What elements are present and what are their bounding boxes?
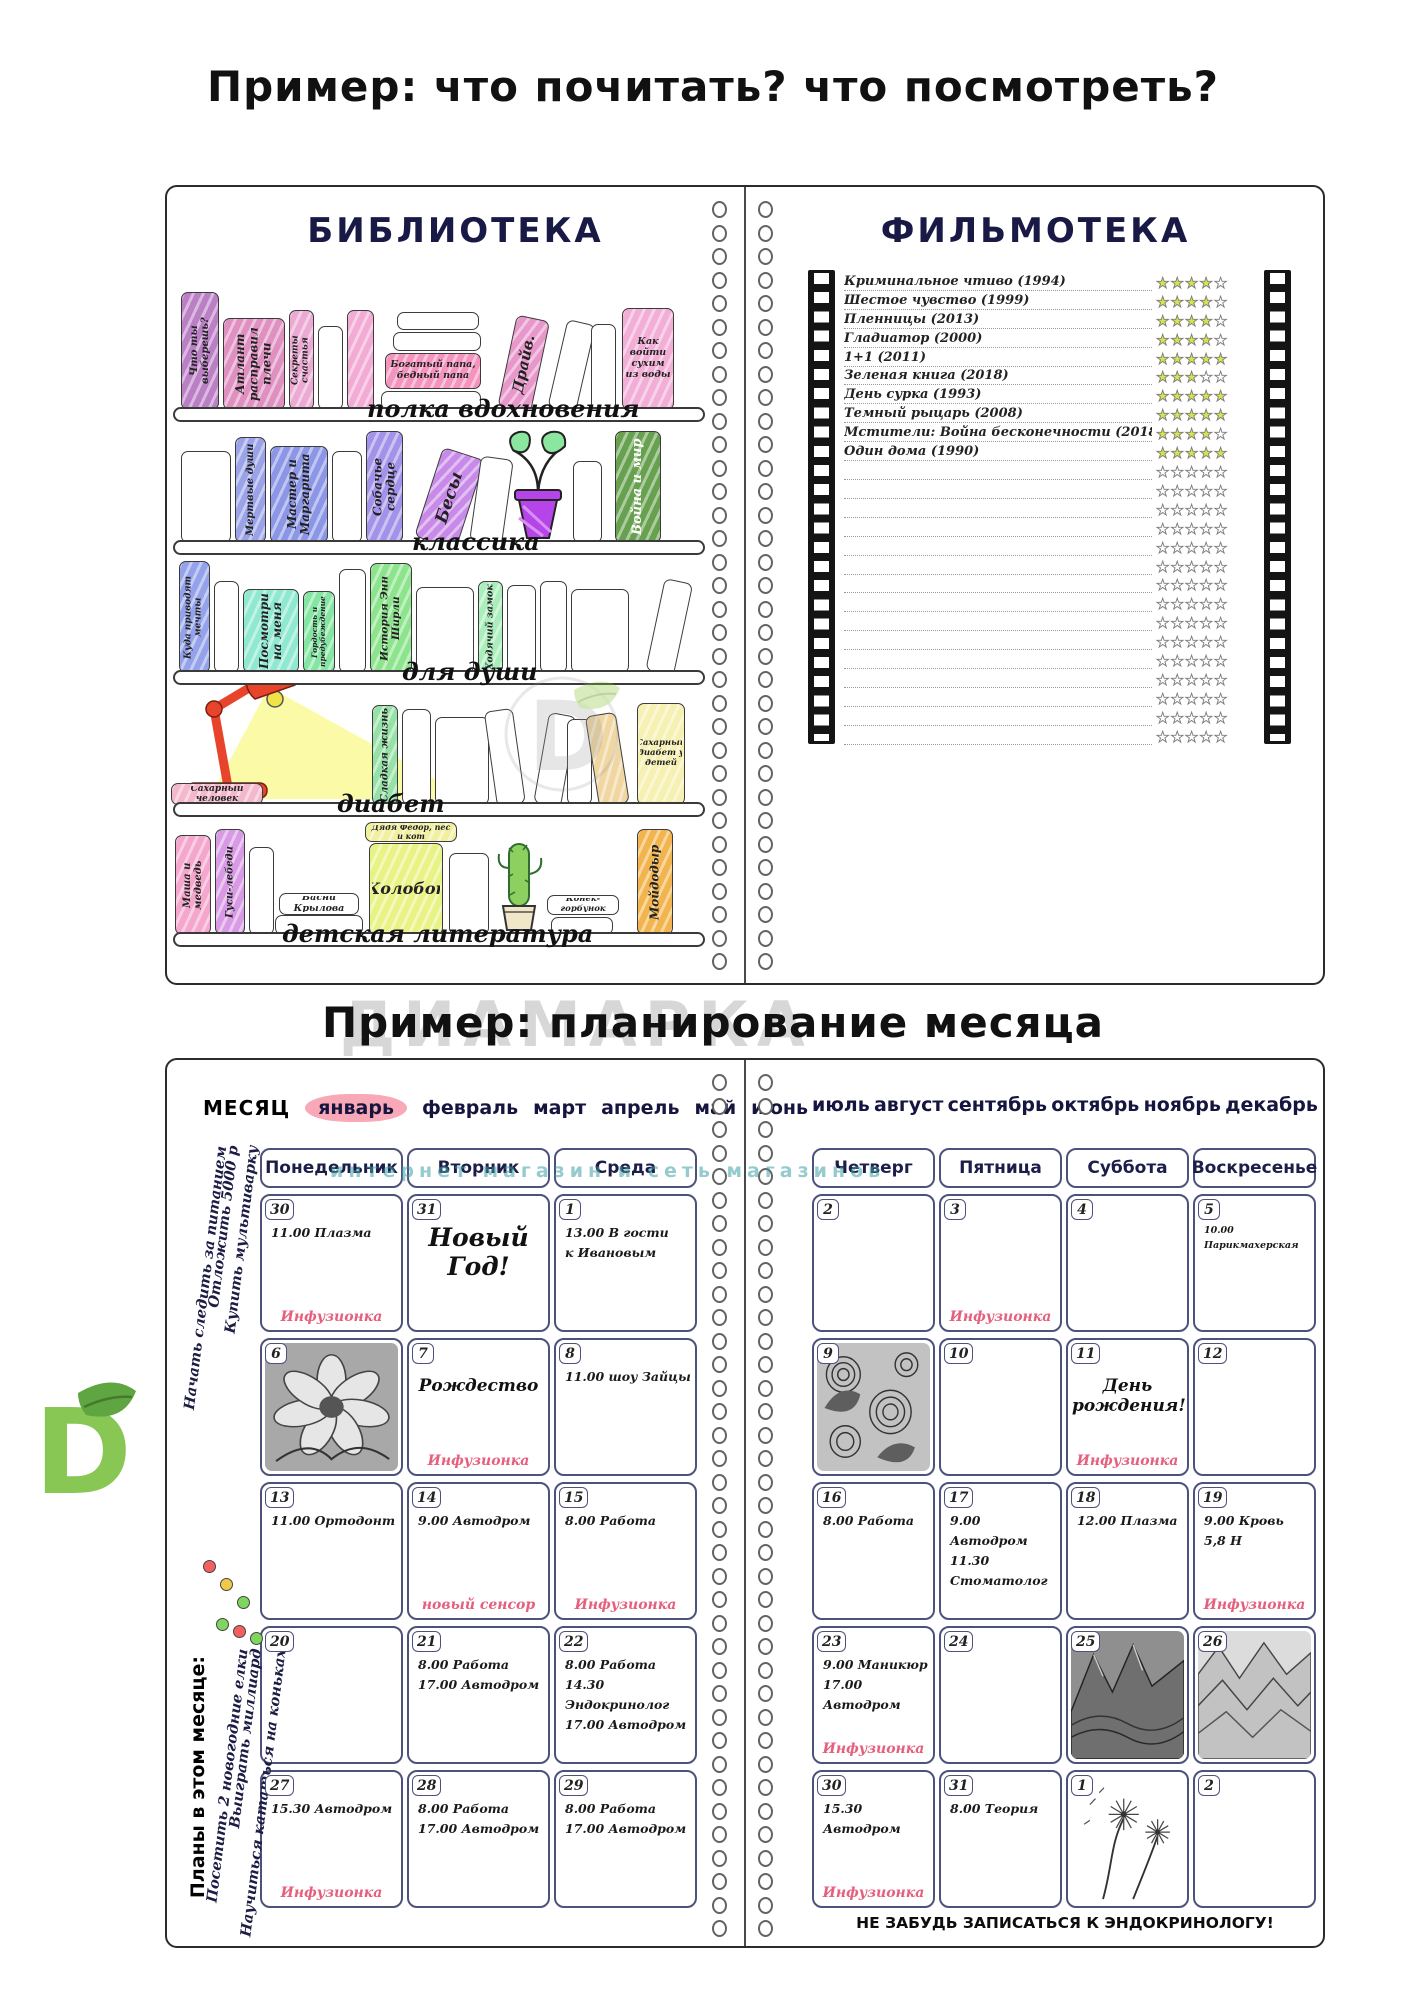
calendar-cell-18: 1812.00 Плазма bbox=[1066, 1482, 1189, 1620]
star-empty-icon: ★ bbox=[1199, 558, 1213, 576]
spiral-hole bbox=[758, 1380, 773, 1397]
book-spine bbox=[645, 578, 693, 676]
month-январь: январь bbox=[305, 1094, 407, 1122]
calendar-cell-5: 510.00 Парикмахерская bbox=[1193, 1194, 1316, 1332]
star-filled-icon: ★ bbox=[1156, 350, 1170, 368]
star-empty-icon: ★ bbox=[1156, 633, 1170, 651]
star-empty-icon: ★ bbox=[1185, 671, 1199, 689]
star-empty-icon: ★ bbox=[1170, 671, 1184, 689]
film-rating: ★★★★★ bbox=[1156, 632, 1254, 651]
star-empty-icon: ★ bbox=[1185, 576, 1199, 594]
star-filled-icon: ★ bbox=[1156, 444, 1170, 462]
star-filled-icon: ★ bbox=[1156, 425, 1170, 443]
calendar-cell-12: 12 bbox=[1193, 1338, 1316, 1476]
cell-entry: 15.30 Автодром bbox=[823, 1799, 929, 1839]
film-name bbox=[844, 595, 1152, 612]
film-row: Криминальное чтиво (1994)★★★★★ bbox=[844, 273, 1254, 292]
star-filled-icon: ★ bbox=[1170, 331, 1184, 349]
book-spine bbox=[181, 451, 231, 543]
film-rating: ★★★★★ bbox=[1156, 443, 1254, 462]
spiral-hole bbox=[758, 1638, 773, 1655]
cell-entries: 9.00 Автодром bbox=[418, 1511, 544, 1531]
cell-entry: 9.00 Маникюр bbox=[823, 1655, 929, 1675]
months-row-right: июльавгустсентябрьоктябрьноябрьдекабрь bbox=[812, 1094, 1318, 1116]
star-empty-icon: ★ bbox=[1185, 633, 1199, 651]
diamarka-leaf-logo: D bbox=[26, 1375, 146, 1519]
spiral-hole bbox=[758, 1897, 773, 1914]
star-empty-icon: ★ bbox=[1185, 690, 1199, 708]
film-rating: ★★★★★ bbox=[1156, 330, 1254, 349]
film-rating: ★★★★★ bbox=[1156, 311, 1254, 330]
cell-entry: 8.00 Теория bbox=[950, 1799, 1056, 1819]
star-filled-icon: ★ bbox=[1156, 293, 1170, 311]
cell-entry: 8.00 Работа bbox=[418, 1655, 544, 1675]
star-filled-icon: ★ bbox=[1185, 444, 1199, 462]
star-filled-icon: ★ bbox=[1185, 293, 1199, 311]
spiral-hole bbox=[712, 1356, 727, 1373]
cell-entries: 11.00 шоу Зайцы bbox=[565, 1367, 691, 1387]
cell-entry-medium: Рождество bbox=[413, 1376, 544, 1396]
film-row: Один дома (1990)★★★★★ bbox=[844, 443, 1254, 462]
book-title: Сахарный диабет у детей bbox=[640, 706, 682, 802]
book-spine bbox=[397, 312, 479, 330]
film-row: Зеленая книга (2018)★★★★★ bbox=[844, 368, 1254, 387]
book-spine: Собачье сердце bbox=[366, 431, 403, 543]
calendar-cell-31: 31Новый Год! bbox=[407, 1194, 550, 1332]
star-empty-icon: ★ bbox=[1214, 633, 1228, 651]
shelf-label: детская литература bbox=[282, 919, 593, 948]
star-empty-icon: ★ bbox=[1199, 633, 1213, 651]
day-header-1: Вторник bbox=[407, 1148, 550, 1188]
book-title: Мастер и Маргарита bbox=[271, 447, 327, 542]
spiral-hole bbox=[758, 1732, 773, 1749]
calendar-cell-17: 179.00 Автодром11.30 Стоматолог bbox=[939, 1482, 1062, 1620]
cell-entry: 17.00 Автодром bbox=[418, 1819, 544, 1839]
star-empty-icon: ★ bbox=[1170, 501, 1184, 519]
spiral-hole bbox=[758, 1427, 773, 1444]
book-spine: Война и мир bbox=[615, 431, 661, 543]
star-empty-icon: ★ bbox=[1170, 576, 1184, 594]
film-name: Мстители: Война бесконечности (2018) bbox=[844, 425, 1152, 442]
star-empty-icon: ★ bbox=[1214, 482, 1228, 500]
film-row: ★★★★★ bbox=[844, 576, 1254, 595]
film-row: ★★★★★ bbox=[844, 538, 1254, 557]
date-badge: 1 bbox=[559, 1199, 581, 1220]
plant-illustration bbox=[505, 428, 571, 542]
star-empty-icon: ★ bbox=[1199, 368, 1213, 386]
spiral-hole bbox=[712, 1544, 727, 1561]
calendar-cell-7: 7РождествоИнфузионка bbox=[407, 1338, 550, 1476]
star-filled-icon: ★ bbox=[1170, 293, 1184, 311]
plans-title: Планы в этом месяце: bbox=[187, 1656, 209, 1898]
film-name bbox=[844, 614, 1152, 631]
date-badge: 5 bbox=[1198, 1199, 1220, 1220]
spiral-hole bbox=[712, 1615, 727, 1632]
spiral-hole bbox=[758, 1215, 773, 1232]
date-badge: 11 bbox=[1071, 1343, 1100, 1364]
cell-entries: 9.00 Маникюр17.00 Автодром bbox=[823, 1655, 929, 1715]
film-rating: ★★★★★ bbox=[1156, 708, 1254, 727]
cell-accent-note: Инфузионка bbox=[1195, 1597, 1314, 1613]
film-strip-perforation bbox=[814, 273, 829, 741]
spiral-hole bbox=[758, 1709, 773, 1726]
film-rating: ★★★★★ bbox=[1156, 594, 1254, 613]
date-badge: 22 bbox=[559, 1631, 588, 1652]
film-name: Зеленая книга (2018) bbox=[844, 368, 1152, 385]
calendar-cell-15: 158.00 РаботаИнфузионка bbox=[554, 1482, 697, 1620]
date-badge: 2 bbox=[817, 1199, 839, 1220]
film-rating: ★★★★★ bbox=[1156, 481, 1254, 500]
book-spine bbox=[540, 581, 567, 673]
star-filled-icon: ★ bbox=[1214, 387, 1228, 405]
date-badge: 18 bbox=[1071, 1487, 1100, 1508]
star-empty-icon: ★ bbox=[1214, 558, 1228, 576]
endocrinologist-reminder: НЕ ЗАБУДЬ ЗАПИСАТЬСЯ К ЭНДОКРИНОЛОГУ! bbox=[812, 1914, 1318, 1932]
film-rating: ★★★★★ bbox=[1156, 462, 1254, 481]
date-badge: 31 bbox=[412, 1199, 441, 1220]
star-filled-icon: ★ bbox=[1156, 368, 1170, 386]
book-spine: Мастер и Маргарита bbox=[270, 446, 328, 543]
cell-entries: 9.00 Кровь5,8 Н bbox=[1204, 1511, 1310, 1551]
star-empty-icon: ★ bbox=[1156, 614, 1170, 632]
star-empty-icon: ★ bbox=[1156, 501, 1170, 519]
calendar-cell-22: 228.00 Работа14.30 Эндокринолог17.00 Авт… bbox=[554, 1626, 697, 1764]
cell-entries: 8.00 Работа14.30 Эндокринолог17.00 Автод… bbox=[565, 1655, 691, 1735]
star-empty-icon: ★ bbox=[1170, 690, 1184, 708]
cell-entries: 8.00 Работа17.00 Автодром bbox=[418, 1799, 544, 1839]
film-row: ★★★★★ bbox=[844, 519, 1254, 538]
star-empty-icon: ★ bbox=[1156, 709, 1170, 727]
film-name: 1+1 (2011) bbox=[844, 350, 1152, 367]
star-filled-icon: ★ bbox=[1170, 444, 1184, 462]
date-badge: 17 bbox=[944, 1487, 973, 1508]
spiral-hole bbox=[712, 1638, 727, 1655]
star-empty-icon: ★ bbox=[1156, 690, 1170, 708]
date-badge: 10 bbox=[944, 1343, 973, 1364]
spiral-hole bbox=[758, 1920, 773, 1937]
star-empty-icon: ★ bbox=[1170, 558, 1184, 576]
book-title: Сахарный человек bbox=[174, 786, 260, 802]
cell-accent-note: Инфузионка bbox=[814, 1885, 933, 1901]
date-badge: 13 bbox=[265, 1487, 294, 1508]
film-row: Шестое чувство (1999)★★★★★ bbox=[844, 292, 1254, 311]
date-badge: 28 bbox=[412, 1775, 441, 1796]
book-spine bbox=[339, 569, 366, 673]
calendar-cell-2: 2 bbox=[812, 1194, 935, 1332]
spiral-hole bbox=[712, 1873, 727, 1890]
star-empty-icon: ★ bbox=[1170, 652, 1184, 670]
book-spine bbox=[214, 581, 239, 673]
star-filled-icon: ★ bbox=[1214, 406, 1228, 424]
film-rating: ★★★★★ bbox=[1156, 670, 1254, 689]
film-row: Мстители: Война бесконечности (2018)★★★★… bbox=[844, 424, 1254, 443]
day-header-3: Воскресенье bbox=[1193, 1148, 1316, 1188]
film-list: Криминальное чтиво (1994)★★★★★Шестое чув… bbox=[844, 273, 1254, 746]
spiral-hole bbox=[712, 1333, 727, 1350]
star-empty-icon: ★ bbox=[1170, 614, 1184, 632]
cell-entries: 11.00 Плазма bbox=[271, 1223, 397, 1243]
calendar-cell-6: 6 bbox=[260, 1338, 403, 1476]
film-row: ★★★★★ bbox=[844, 613, 1254, 632]
date-badge: 9 bbox=[817, 1343, 839, 1364]
spiral-binding bbox=[712, 1060, 782, 1946]
star-empty-icon: ★ bbox=[1199, 463, 1213, 481]
spiral-hole bbox=[712, 1826, 727, 1843]
spiral-hole bbox=[712, 1685, 727, 1702]
spiral-hole bbox=[712, 1286, 727, 1303]
film-name: Гладиатор (2000) bbox=[844, 331, 1152, 348]
calendar-cell-10: 10 bbox=[939, 1338, 1062, 1476]
film-rating: ★★★★★ bbox=[1156, 557, 1254, 576]
star-empty-icon: ★ bbox=[1185, 501, 1199, 519]
spiral-hole bbox=[712, 1850, 727, 1867]
star-empty-icon: ★ bbox=[1170, 709, 1184, 727]
star-empty-icon: ★ bbox=[1214, 595, 1228, 613]
star-filled-icon: ★ bbox=[1156, 331, 1170, 349]
cell-entries: 8.00 Работа17.00 Автодром bbox=[418, 1655, 544, 1695]
calendar-cell-11: 11День рождения!Инфузионка bbox=[1066, 1338, 1189, 1476]
cell-entries: 15.30 Автодром bbox=[271, 1799, 397, 1819]
star-filled-icon: ★ bbox=[1199, 274, 1213, 292]
star-empty-icon: ★ bbox=[1199, 614, 1213, 632]
film-row: ★★★★★ bbox=[844, 594, 1254, 613]
star-filled-icon: ★ bbox=[1156, 312, 1170, 330]
film-name: Криминальное чтиво (1994) bbox=[844, 274, 1152, 291]
book-title: Что ты выберешь? bbox=[182, 293, 218, 409]
cell-entry: 12.00 Плазма bbox=[1077, 1511, 1183, 1531]
cell-entries: 9.00 Автодром11.30 Стоматолог bbox=[950, 1511, 1056, 1591]
cell-entry: 5,8 Н bbox=[1204, 1531, 1310, 1551]
calendar-cell-30: 3015.30 АвтодромИнфузионка bbox=[812, 1770, 935, 1908]
film-row: ★★★★★ bbox=[844, 462, 1254, 481]
planner-catalog-page: Пример: что почитать? что посмотреть? БИ… bbox=[0, 0, 1426, 2000]
film-row: ★★★★★ bbox=[844, 727, 1254, 746]
star-filled-icon: ★ bbox=[1156, 406, 1170, 424]
book-spine bbox=[393, 332, 481, 351]
book-spine bbox=[249, 847, 274, 935]
film-rating: ★★★★★ bbox=[1156, 519, 1254, 538]
star-filled-icon: ★ bbox=[1185, 274, 1199, 292]
film-row: ★★★★★ bbox=[844, 708, 1254, 727]
example-title-reading: Пример: что почитать? что посмотреть? bbox=[0, 62, 1426, 111]
book-spine: Маша и медведь bbox=[175, 835, 211, 935]
spiral-hole bbox=[712, 1568, 727, 1585]
film-rating: ★★★★★ bbox=[1156, 367, 1254, 386]
spiral-hole bbox=[758, 1239, 773, 1256]
day-header-2: Среда bbox=[554, 1148, 697, 1188]
film-rating: ★★★★★ bbox=[1156, 273, 1254, 292]
page-divider bbox=[744, 1060, 746, 1946]
date-badge: 3 bbox=[944, 1199, 966, 1220]
star-empty-icon: ★ bbox=[1185, 463, 1199, 481]
calendar-cell-19: 199.00 Кровь5,8 НИнфузионка bbox=[1193, 1482, 1316, 1620]
star-empty-icon: ★ bbox=[1214, 652, 1228, 670]
star-filled-icon: ★ bbox=[1199, 387, 1213, 405]
book-spine: Куда приводят мечты bbox=[179, 561, 210, 673]
calendar-cell-31: 318.00 Теория bbox=[939, 1770, 1062, 1908]
star-filled-icon: ★ bbox=[1185, 331, 1199, 349]
filmoteka-title: ФИЛЬМОТЕКА bbox=[744, 211, 1327, 251]
book-title: Секреты счастья bbox=[290, 311, 313, 409]
spiral-hole bbox=[712, 1591, 727, 1608]
calendar-cell-26: 26 bbox=[1193, 1626, 1316, 1764]
star-empty-icon: ★ bbox=[1170, 595, 1184, 613]
star-empty-icon: ★ bbox=[1214, 368, 1228, 386]
star-empty-icon: ★ bbox=[1185, 539, 1199, 557]
cell-entries: 13.00 В гостик Ивановым bbox=[565, 1223, 691, 1263]
day-header-0: Понедельник bbox=[260, 1148, 403, 1188]
spiral-hole bbox=[712, 1521, 727, 1538]
film-name bbox=[844, 501, 1152, 518]
plan-status-dot bbox=[216, 1618, 229, 1631]
star-filled-icon: ★ bbox=[1214, 350, 1228, 368]
calendar-cell-21: 218.00 Работа17.00 Автодром bbox=[407, 1626, 550, 1764]
star-filled-icon: ★ bbox=[1156, 274, 1170, 292]
goal-status-dot bbox=[237, 1596, 250, 1609]
spiral-hole bbox=[758, 1121, 773, 1138]
cell-entry: 8.00 Работа bbox=[823, 1511, 929, 1531]
book-title: Маша и медведь bbox=[176, 836, 210, 934]
star-empty-icon: ★ bbox=[1214, 520, 1228, 538]
book-spine bbox=[571, 589, 629, 673]
day-header-0: Четверг bbox=[812, 1148, 935, 1188]
star-filled-icon: ★ bbox=[1199, 350, 1213, 368]
goal-status-dot bbox=[203, 1560, 216, 1573]
star-empty-icon: ★ bbox=[1199, 482, 1213, 500]
date-badge: 8 bbox=[559, 1343, 581, 1364]
star-filled-icon: ★ bbox=[1199, 331, 1213, 349]
star-empty-icon: ★ bbox=[1185, 614, 1199, 632]
cell-entry: 17.00 Автодром bbox=[823, 1675, 929, 1715]
month-декабрь: декабрь bbox=[1225, 1094, 1318, 1116]
star-empty-icon: ★ bbox=[1214, 614, 1228, 632]
cell-entry: 11.00 шоу Зайцы bbox=[565, 1367, 691, 1387]
cell-entry: 9.00 Автодром bbox=[418, 1511, 544, 1531]
library-title: БИБЛИОТЕКА bbox=[167, 211, 744, 251]
book-title: Гуси-лебеди bbox=[216, 830, 244, 934]
star-empty-icon: ★ bbox=[1199, 501, 1213, 519]
cell-entry: 8.00 Работа bbox=[565, 1511, 691, 1531]
star-empty-icon: ★ bbox=[1185, 558, 1199, 576]
month-июнь: июнь bbox=[751, 1097, 808, 1119]
date-badge: 26 bbox=[1198, 1631, 1227, 1652]
film-name bbox=[844, 652, 1152, 669]
star-filled-icon: ★ bbox=[1170, 406, 1184, 424]
star-filled-icon: ★ bbox=[1199, 425, 1213, 443]
film-strip-right bbox=[1264, 270, 1291, 744]
star-empty-icon: ★ bbox=[1185, 709, 1199, 727]
filmoteka-page: ФИЛЬМОТЕКА Криминальное чтиво (1994)★★★★… bbox=[744, 187, 1327, 983]
film-name bbox=[844, 728, 1152, 745]
cell-entry: 17.00 Автодром bbox=[418, 1675, 544, 1695]
spiral-hole bbox=[712, 1779, 727, 1796]
spiral-hole bbox=[712, 1732, 727, 1749]
spiral-hole bbox=[758, 1192, 773, 1209]
star-empty-icon: ★ bbox=[1156, 463, 1170, 481]
star-empty-icon: ★ bbox=[1170, 728, 1184, 746]
calendar-cell-1: 113.00 В гостик Ивановым bbox=[554, 1194, 697, 1332]
film-name: Пленницы (2013) bbox=[844, 312, 1152, 329]
spiral-hole bbox=[712, 1074, 727, 1091]
cell-accent-note: Инфузионка bbox=[556, 1597, 695, 1613]
calendar-cell-16: 168.00 Работа bbox=[812, 1482, 935, 1620]
cell-entries: 11.00 Ортодонт bbox=[271, 1511, 397, 1531]
spiral-hole bbox=[758, 1873, 773, 1890]
film-row: ★★★★★ bbox=[844, 481, 1254, 500]
book-title: Богатый папа, бедный папа bbox=[388, 356, 478, 386]
month-февраль: февраль bbox=[422, 1097, 518, 1119]
star-empty-icon: ★ bbox=[1199, 709, 1213, 727]
month-май: май bbox=[694, 1097, 736, 1119]
star-filled-icon: ★ bbox=[1170, 387, 1184, 405]
film-name: Темный рыцарь (2008) bbox=[844, 406, 1152, 423]
star-filled-icon: ★ bbox=[1185, 387, 1199, 405]
book-title: История Энн Ширли bbox=[371, 564, 411, 672]
months-row-left: МЕСЯЦ январьфевральмартапрельмайиюнь bbox=[203, 1094, 808, 1122]
film-row: 1+1 (2011)★★★★★ bbox=[844, 349, 1254, 368]
spiral-hole bbox=[758, 1568, 773, 1585]
star-empty-icon: ★ bbox=[1185, 728, 1199, 746]
cell-entry: к Ивановым bbox=[565, 1243, 691, 1263]
book-spine: Атлант расправил плечи bbox=[223, 318, 285, 410]
spiral-hole bbox=[758, 1403, 773, 1420]
book-title: Куда приводят мечты bbox=[180, 562, 209, 672]
star-empty-icon: ★ bbox=[1170, 520, 1184, 538]
star-filled-icon: ★ bbox=[1170, 274, 1184, 292]
spiral-hole bbox=[758, 1521, 773, 1538]
spiral-hole bbox=[712, 1403, 727, 1420]
book-title: Басни Крылова bbox=[282, 896, 356, 912]
shelf-label: для души bbox=[402, 657, 538, 686]
star-empty-icon: ★ bbox=[1170, 633, 1184, 651]
book-title: Посмотри на меня bbox=[244, 590, 298, 672]
star-empty-icon: ★ bbox=[1170, 463, 1184, 481]
cell-accent-note: Инфузионка bbox=[409, 1453, 548, 1469]
date-badge: 7 bbox=[412, 1343, 434, 1364]
spiral-hole bbox=[712, 1427, 727, 1444]
star-filled-icon: ★ bbox=[1170, 312, 1184, 330]
book-spine: Секреты счастья bbox=[289, 310, 314, 410]
cell-entries: 15.30 Автодром bbox=[823, 1799, 929, 1839]
film-rating: ★★★★★ bbox=[1156, 292, 1254, 311]
film-rating: ★★★★★ bbox=[1156, 405, 1254, 424]
star-filled-icon: ★ bbox=[1199, 444, 1213, 462]
spiral-hole bbox=[758, 1356, 773, 1373]
spiral-hole bbox=[758, 1262, 773, 1279]
spiral-hole bbox=[758, 1826, 773, 1843]
spiral-hole bbox=[712, 1215, 727, 1232]
star-empty-icon: ★ bbox=[1185, 482, 1199, 500]
spiral-hole bbox=[758, 1685, 773, 1702]
star-filled-icon: ★ bbox=[1199, 293, 1213, 311]
cell-entry: 14.30 Эндокринолог bbox=[565, 1675, 691, 1715]
film-strip-left bbox=[808, 270, 835, 744]
date-badge: 20 bbox=[265, 1631, 294, 1652]
spiral-hole bbox=[712, 1380, 727, 1397]
cell-entry: 13.00 В гости bbox=[565, 1223, 691, 1243]
book-spine: Сахарный диабет у детей bbox=[637, 703, 685, 805]
star-empty-icon: ★ bbox=[1214, 425, 1228, 443]
star-filled-icon: ★ bbox=[1199, 312, 1213, 330]
svg-text:D: D bbox=[34, 1383, 132, 1515]
star-empty-icon: ★ bbox=[1199, 520, 1213, 538]
date-badge: 14 bbox=[412, 1487, 441, 1508]
spiral-hole bbox=[758, 1074, 773, 1091]
shelf-label: диабет bbox=[337, 789, 445, 818]
spiral-hole bbox=[712, 1662, 727, 1679]
book-title: Конёк-горбунок bbox=[550, 898, 616, 912]
date-badge: 1 bbox=[1071, 1775, 1093, 1796]
